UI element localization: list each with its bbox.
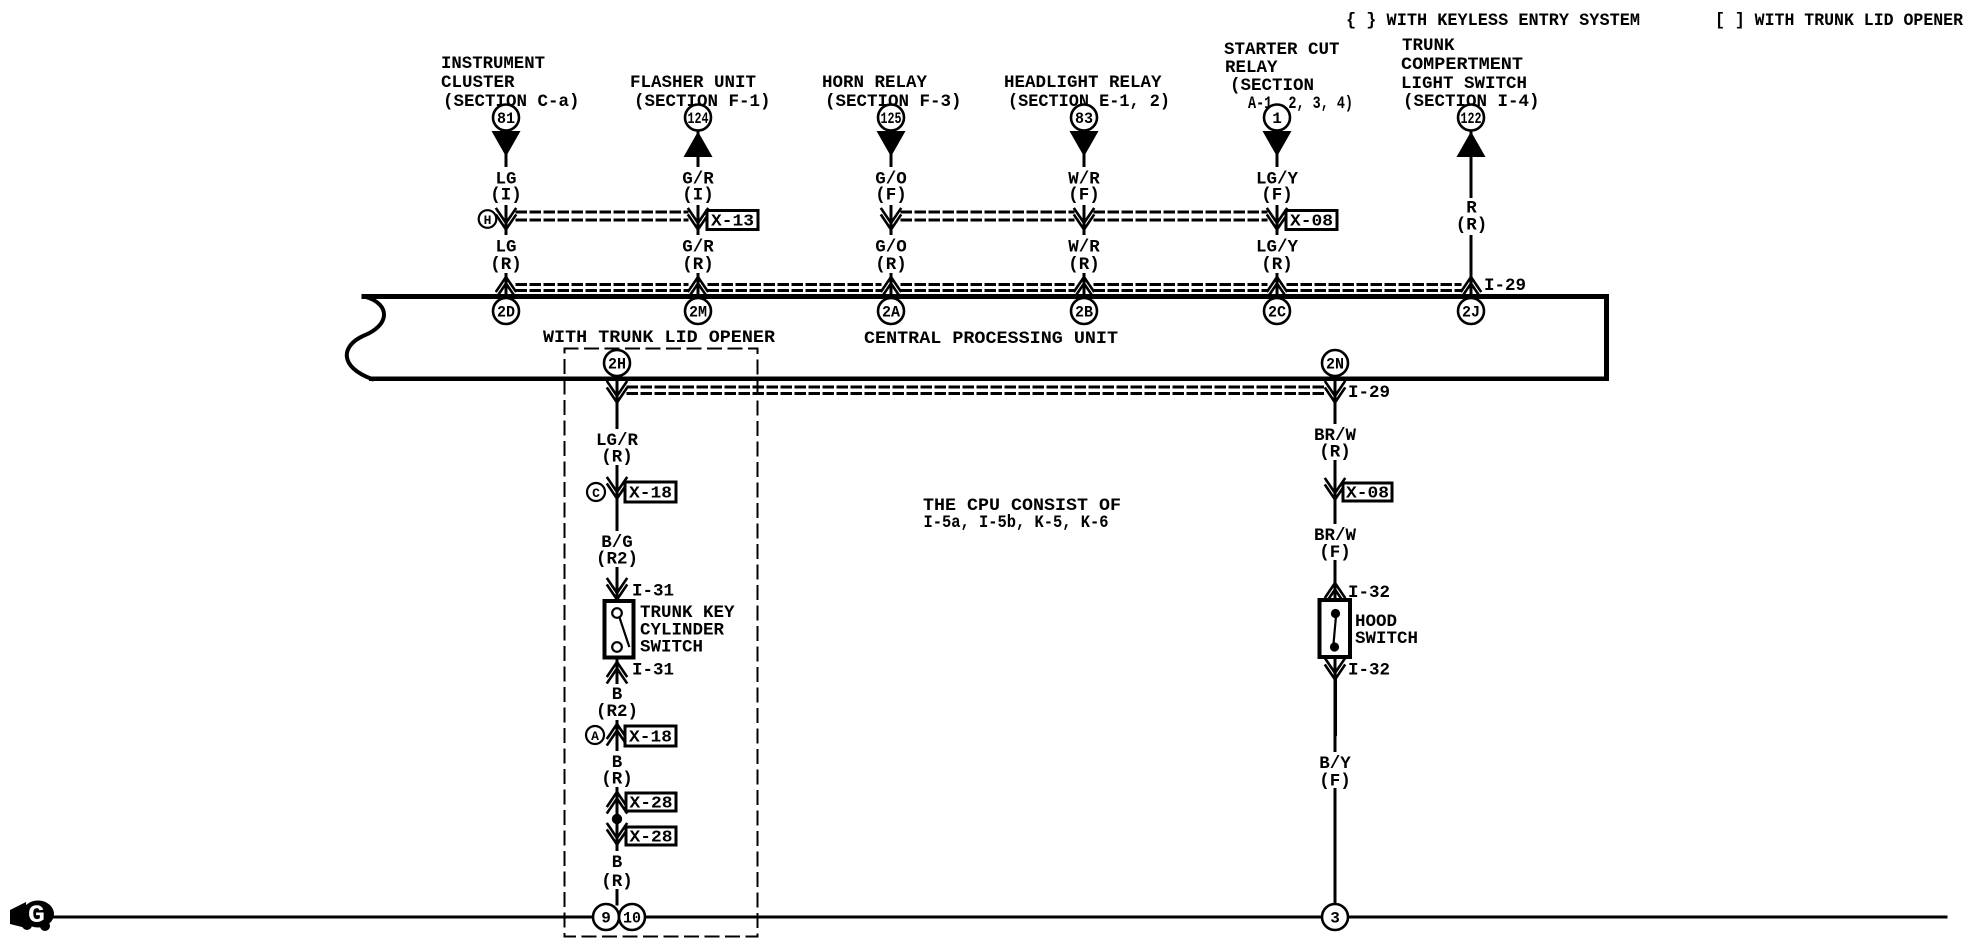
svg-text:2N: 2N — [1326, 356, 1344, 374]
svg-text:(R2): (R2) — [596, 550, 638, 570]
svg-text:(I): (I) — [490, 186, 522, 206]
svg-text:2A: 2A — [882, 304, 900, 322]
svg-text:1: 1 — [1272, 110, 1282, 128]
svg-text:STARTER CUT: STARTER CUT — [1224, 40, 1340, 60]
svg-text:2M: 2M — [689, 304, 707, 322]
svg-text:X-18: X-18 — [629, 728, 672, 747]
svg-text:10: 10 — [623, 910, 641, 928]
svg-text:(R): (R) — [490, 255, 522, 275]
svg-text:A: A — [591, 729, 599, 744]
svg-text:X-08: X-08 — [1346, 484, 1389, 503]
svg-text:(R): (R) — [601, 448, 633, 468]
svg-text:X-28: X-28 — [630, 828, 673, 847]
svg-text:(R): (R) — [601, 770, 633, 790]
svg-text:HEADLIGHT RELAY: HEADLIGHT RELAY — [1004, 73, 1162, 93]
svg-text:(R): (R) — [1068, 255, 1100, 275]
svg-text:CENTRAL PROCESSING UNIT: CENTRAL PROCESSING UNIT — [864, 329, 1118, 349]
svg-text:X-28: X-28 — [630, 794, 673, 813]
svg-text:WITH TRUNK LID OPENER: WITH TRUNK LID OPENER — [543, 328, 776, 348]
svg-text:X-18: X-18 — [629, 484, 672, 503]
svg-text:122: 122 — [1461, 110, 1482, 128]
svg-text:(R): (R) — [1319, 443, 1351, 463]
svg-text:[ ] WITH TRUNK LID OPENER: [ ] WITH TRUNK LID OPENER — [1715, 11, 1963, 31]
svg-text:TRUNK: TRUNK — [1402, 36, 1455, 56]
svg-text:124: 124 — [688, 110, 709, 128]
svg-text:RELAY: RELAY — [1225, 58, 1278, 78]
svg-text:2B: 2B — [1075, 304, 1093, 322]
svg-text:FLASHER UNIT: FLASHER UNIT — [630, 73, 756, 93]
svg-text:SWITCH: SWITCH — [1355, 629, 1418, 649]
svg-text:INSTRUMENT: INSTRUMENT — [441, 54, 545, 74]
svg-text:H: H — [484, 213, 492, 228]
svg-text:(I): (I) — [682, 186, 714, 206]
svg-text:I-5a, I-5b, K-5, K-6: I-5a, I-5b, K-5, K-6 — [924, 513, 1109, 533]
svg-text:A-1, 2, 3, 4): A-1, 2, 3, 4) — [1248, 94, 1353, 114]
svg-text:81: 81 — [497, 110, 515, 128]
svg-text:X-13: X-13 — [711, 212, 754, 231]
svg-text:I-31: I-31 — [632, 582, 674, 602]
svg-text:COMPERTMENT: COMPERTMENT — [1401, 55, 1523, 75]
svg-text:I-32: I-32 — [1348, 583, 1390, 603]
svg-text:HORN RELAY: HORN RELAY — [822, 73, 928, 93]
svg-text:LIGHT SWITCH: LIGHT SWITCH — [1401, 74, 1527, 94]
svg-text:2C: 2C — [1268, 304, 1286, 322]
svg-text:(R): (R) — [601, 872, 633, 892]
svg-text:(F): (F) — [1068, 186, 1100, 206]
svg-text:C: C — [592, 486, 600, 501]
svg-text:125: 125 — [881, 110, 902, 128]
svg-text:SWITCH: SWITCH — [640, 638, 703, 658]
svg-text:(F): (F) — [1319, 772, 1351, 792]
svg-text:{ } WITH KEYLESS ENTRY SYSTEM: { } WITH KEYLESS ENTRY SYSTEM — [1346, 11, 1640, 31]
svg-text:2D: 2D — [497, 304, 515, 322]
svg-text:(R): (R) — [1456, 216, 1488, 236]
svg-text:3: 3 — [1330, 910, 1340, 928]
svg-text:83: 83 — [1075, 110, 1093, 128]
svg-text:2H: 2H — [608, 356, 626, 374]
svg-text:G: G — [28, 901, 45, 930]
svg-text:2J: 2J — [1462, 304, 1480, 322]
svg-text:(SECTION: (SECTION — [1230, 76, 1314, 96]
svg-text:I-29: I-29 — [1348, 383, 1390, 403]
svg-text:(F): (F) — [1319, 543, 1351, 563]
svg-text:(F): (F) — [875, 186, 907, 206]
svg-text:(F): (F) — [1261, 186, 1293, 206]
svg-text:(R2): (R2) — [596, 702, 638, 722]
svg-text:I-31: I-31 — [632, 661, 674, 681]
svg-text:CLUSTER: CLUSTER — [441, 73, 515, 93]
svg-text:(R): (R) — [875, 255, 907, 275]
svg-text:9: 9 — [601, 910, 611, 928]
svg-text:B: B — [612, 853, 623, 873]
svg-text:X-08: X-08 — [1290, 212, 1333, 231]
svg-text:(R): (R) — [1261, 255, 1293, 275]
svg-text:(R): (R) — [682, 255, 714, 275]
svg-text:I-32: I-32 — [1348, 661, 1390, 681]
svg-text:I-29: I-29 — [1484, 276, 1526, 296]
